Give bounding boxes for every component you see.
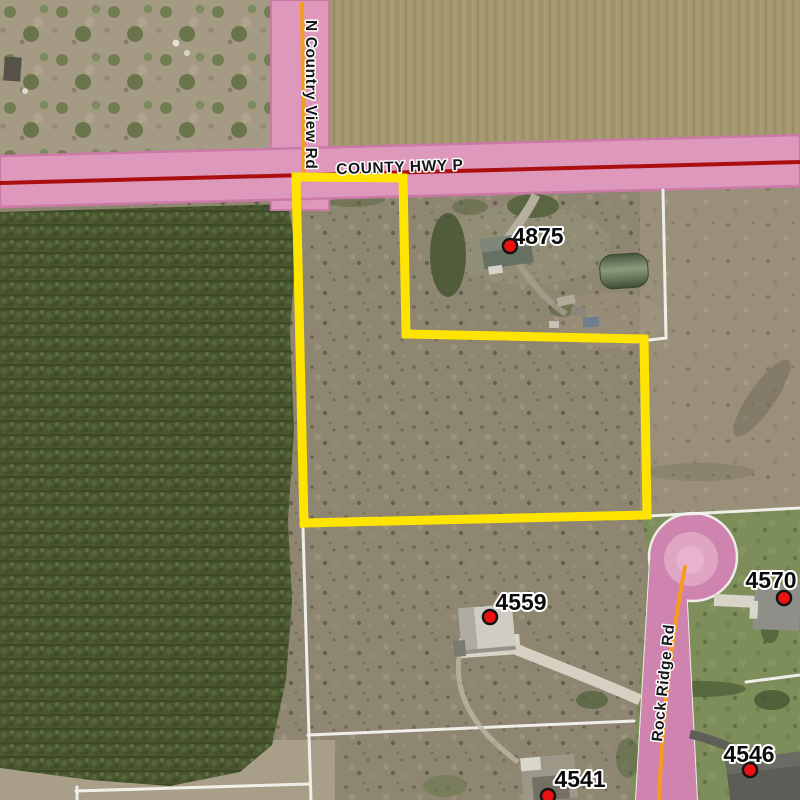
address-label-4570: 4570 <box>745 567 796 593</box>
field-shadow <box>645 463 755 481</box>
parcel-line <box>309 736 311 800</box>
address-dot-4875[interactable] <box>503 239 517 253</box>
tree-cluster <box>576 691 608 709</box>
tree-cluster <box>430 213 466 297</box>
house-4570-detail <box>749 601 758 619</box>
house-4541-pad <box>520 757 541 772</box>
bush <box>423 775 467 797</box>
shed-northwest <box>3 56 22 81</box>
terrain-pine-forest <box>0 204 296 786</box>
n-country-view-rd-label: N Country View Rd <box>302 20 319 169</box>
address-marker-4875[interactable]: 4875 <box>503 223 564 253</box>
yard-object <box>583 316 600 327</box>
address-label-4875: 4875 <box>512 223 563 249</box>
aerial-map-canvas[interactable]: COUNTY HWY P N Country View Rd Rock Ridg… <box>0 0 800 800</box>
bush <box>616 738 640 778</box>
yard-object <box>184 50 190 56</box>
address-dot-4546[interactable] <box>743 763 757 777</box>
address-label-4541: 4541 <box>554 766 605 792</box>
address-dot-4559[interactable] <box>483 610 497 624</box>
quonset-barn <box>599 252 649 289</box>
map-svg[interactable]: COUNTY HWY P N Country View Rd Rock Ridg… <box>0 0 800 800</box>
house-4559-garage <box>453 640 466 657</box>
yard-object <box>549 321 559 328</box>
tree-cluster <box>452 199 488 215</box>
address-dot-4541[interactable] <box>541 789 555 800</box>
yard-object <box>22 88 28 94</box>
yard-object <box>173 40 180 47</box>
address-label-4559: 4559 <box>495 589 546 615</box>
address-dot-4570[interactable] <box>777 591 791 605</box>
quonset-barn-roof <box>599 252 649 289</box>
culdesac-center <box>676 546 704 574</box>
tree-cluster <box>754 690 790 710</box>
